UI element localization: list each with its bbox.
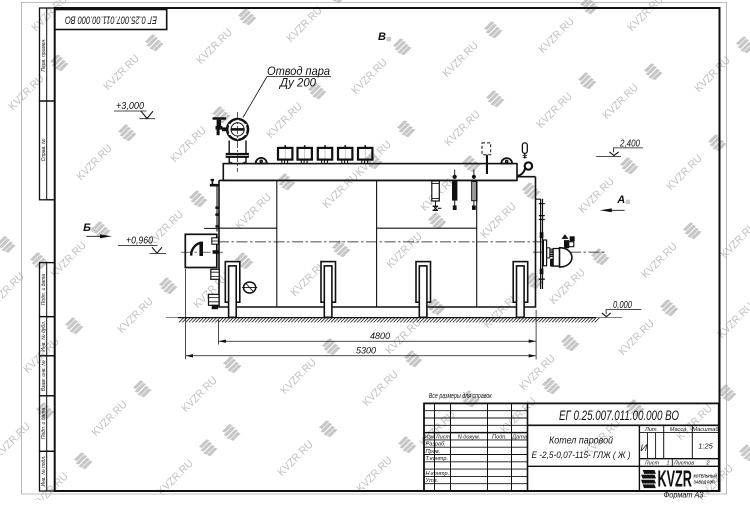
- svg-text:Изм: Изм: [424, 434, 435, 440]
- svg-text:ЕГ 0.25.007.011.00.000 ВО: ЕГ 0.25.007.011.00.000 ВО: [559, 408, 679, 423]
- svg-text:5300: 5300: [356, 345, 376, 355]
- svg-text:Н.контр.: Н.контр.: [426, 471, 450, 477]
- svg-text:+0,960: +0,960: [126, 236, 153, 247]
- svg-text:N докум.: N докум.: [458, 434, 481, 440]
- svg-text:Перв. примен.: Перв. примен.: [41, 38, 47, 71]
- svg-text:ЕГ 0.25.007.011.00.000 ВО: ЕГ 0.25.007.011.00.000 ВО: [65, 14, 157, 26]
- svg-text:Формат А3: Формат А3: [664, 490, 704, 500]
- svg-text:Инв. № подл.: Инв. № подл.: [41, 455, 47, 486]
- svg-text:В: В: [378, 31, 386, 43]
- svg-text:Лит.: Лит.: [644, 427, 658, 433]
- svg-text:4800: 4800: [370, 331, 390, 341]
- svg-text:ЗАВОД РЭП: ЗАВОД РЭП: [694, 480, 716, 485]
- svg-text:Масса: Масса: [670, 427, 687, 433]
- svg-text:+3,000: +3,000: [116, 101, 144, 112]
- svg-text:Взам. инв. №: Взам. инв. №: [41, 360, 47, 392]
- svg-text:КОТЕЛЬНЫЙ: КОТЕЛЬНЫЙ: [694, 472, 718, 479]
- svg-text:Пров.: Пров.: [426, 449, 441, 455]
- svg-text:Лист: Лист: [435, 434, 451, 440]
- svg-text:Инв. № дубл.: Инв. № дубл.: [41, 321, 47, 352]
- svg-text:А: А: [616, 194, 625, 206]
- svg-text:Т.контр.: Т.контр.: [426, 456, 449, 462]
- svg-text:Ду 200: Ду 200: [278, 78, 317, 90]
- svg-text:Е -2,5-0,07-115- ГЛЖ ( Ж ): Е -2,5-0,07-115- ГЛЖ ( Ж ): [532, 450, 631, 460]
- svg-text:KVZR: KVZR: [658, 465, 693, 491]
- svg-text:Котел паровой: Котел паровой: [549, 436, 613, 447]
- svg-text:И: И: [640, 443, 647, 454]
- svg-text:Масштаб: Масштаб: [692, 427, 719, 433]
- svg-text:1:25: 1:25: [698, 442, 713, 451]
- svg-text:Все размеры для справок: Все размеры для справок: [429, 391, 492, 400]
- svg-text:Подп. и дата: Подп. и дата: [41, 274, 47, 306]
- svg-text:Подп. и дата: Подп. и дата: [41, 408, 47, 440]
- svg-text:Дата: Дата: [511, 434, 527, 440]
- svg-text:Б: Б: [83, 222, 91, 234]
- svg-text:Подп.: Подп.: [492, 434, 507, 440]
- svg-text:Разраб.: Разраб.: [426, 442, 446, 448]
- svg-text:Утв.: Утв.: [425, 478, 439, 484]
- svg-text:Справ. №: Справ. №: [41, 138, 47, 161]
